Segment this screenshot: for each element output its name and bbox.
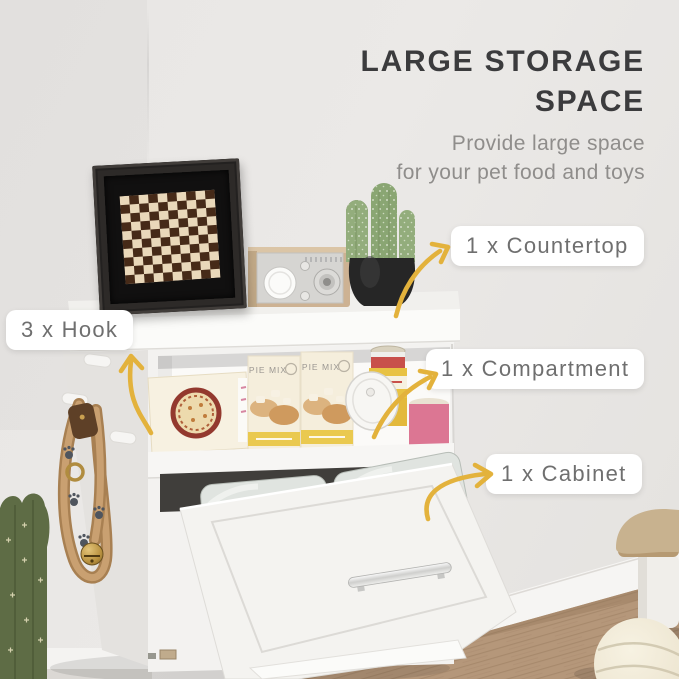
callout-countertop: 1 x Countertop — [451, 226, 644, 266]
checkerboard-art — [119, 190, 220, 284]
callout-cabinet: 1 x Cabinet — [486, 454, 642, 494]
subtitle-line-1: Provide large space — [309, 130, 645, 159]
cactus-plant — [346, 183, 415, 306]
callout-hook: 3 x Hook — [6, 310, 133, 350]
callout-cabinet-label: 1 x Cabinet — [501, 461, 627, 486]
pie-mix-box-upright-2: PIE MIX — [301, 352, 353, 457]
picture-frame — [92, 158, 247, 315]
pie-mix-box-upright-1: PIE MIX — [248, 356, 300, 456]
pie-box-label: PIE MIX — [249, 365, 287, 375]
header: LARGE STORAGE SPACE Provide large space … — [309, 42, 645, 187]
product-feature-image: PIE MIX PIE MIX — [0, 0, 679, 679]
pie-mix-box-flat — [148, 372, 250, 454]
collar-bell — [81, 543, 103, 565]
subtitle-line-2: for your pet food and toys — [309, 159, 645, 188]
frame-mat — [104, 170, 236, 304]
subtitle: Provide large space for your pet food an… — [309, 130, 645, 187]
radio — [248, 247, 350, 307]
callout-countertop-label: 1 x Countertop — [466, 233, 629, 258]
callout-compartment: 1 x Compartment — [426, 349, 644, 389]
page-title: LARGE STORAGE SPACE — [309, 42, 645, 121]
callout-compartment-label: 1 x Compartment — [441, 356, 629, 381]
plant-pot — [349, 256, 415, 306]
floor-cactus — [0, 494, 49, 679]
callout-hook-label: 3 x Hook — [21, 317, 118, 342]
pie-box-label: PIE MIX — [302, 362, 340, 372]
